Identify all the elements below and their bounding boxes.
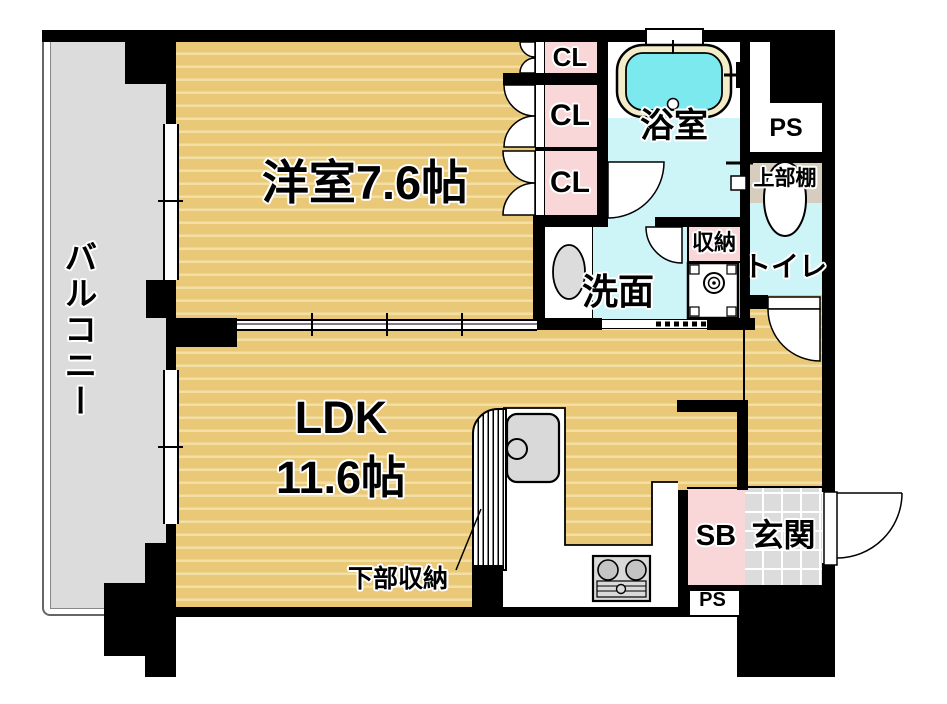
cl1-label: CL: [543, 42, 597, 73]
cl3-label: CL: [543, 151, 597, 215]
wall-ldk-vertical: [737, 400, 748, 490]
wall-left-c: [166, 347, 176, 370]
wall-top: [42, 30, 835, 42]
window-ldk-icon: [163, 370, 179, 524]
ps-top-label: PS: [750, 110, 822, 146]
bath-label: 浴室: [608, 104, 740, 148]
kitchen-floor-a: [503, 408, 565, 607]
balcony-label: バルコニー: [55, 222, 101, 437]
wall-block-bottom-right: [737, 585, 835, 677]
lower-storage-label: 下部収納: [336, 563, 460, 595]
wall-western-washroom: [533, 227, 545, 330]
washroom-label: 洗面: [553, 270, 683, 314]
ps-bottom-label: PS: [688, 589, 737, 613]
wall-washroom-bottom-right: [707, 318, 755, 330]
storage-label: 収納: [685, 228, 743, 258]
lower-storage-cabinet: [472, 408, 507, 571]
wall-left-b: [146, 280, 176, 318]
entrance-door-icon: [824, 492, 902, 565]
upper-shelf-label: 上部棚: [740, 164, 830, 194]
window-western-icon: [163, 124, 179, 280]
wall-under-ps: [750, 152, 822, 163]
wall-washroom-bottom-left: [533, 318, 602, 330]
entrance-label: 玄関: [745, 515, 822, 555]
wall-bath-bottom: [655, 217, 750, 227]
ps-top-area-a: [750, 42, 770, 103]
washroom-opening-icon: [602, 319, 707, 329]
floor-plan: バルコニー 洋室7.6帖 LDK 11.6帖 CL CL CL 浴室 PS 上部…: [0, 0, 947, 704]
sb-label: SB: [687, 518, 745, 556]
wall-slide-stub: [166, 318, 237, 347]
wall-pillar-b: [104, 583, 176, 656]
wall-bottom: [166, 607, 688, 617]
kitchen-floor-b: [565, 545, 652, 607]
cl2-label: CL: [543, 85, 597, 147]
ldk-label-line1: LDK: [208, 390, 474, 446]
ldk-label-line2: 11.6帖: [208, 450, 474, 506]
wall-cl-divider1: [503, 73, 597, 85]
wall-cl-bottom: [533, 215, 607, 227]
wall-cl-bath: [597, 42, 608, 227]
sliding-door-icon: [237, 319, 537, 331]
window-bath-icon: [645, 28, 704, 46]
wall-ps-corner: [770, 42, 822, 103]
wall-toilet-door-stub: [750, 295, 768, 309]
western-room-label: 洋室7.6帖: [205, 152, 525, 214]
wall-left-a: [166, 42, 176, 124]
kitchen-floor-c: [652, 482, 678, 607]
toilet-label: トイレ: [740, 249, 830, 285]
